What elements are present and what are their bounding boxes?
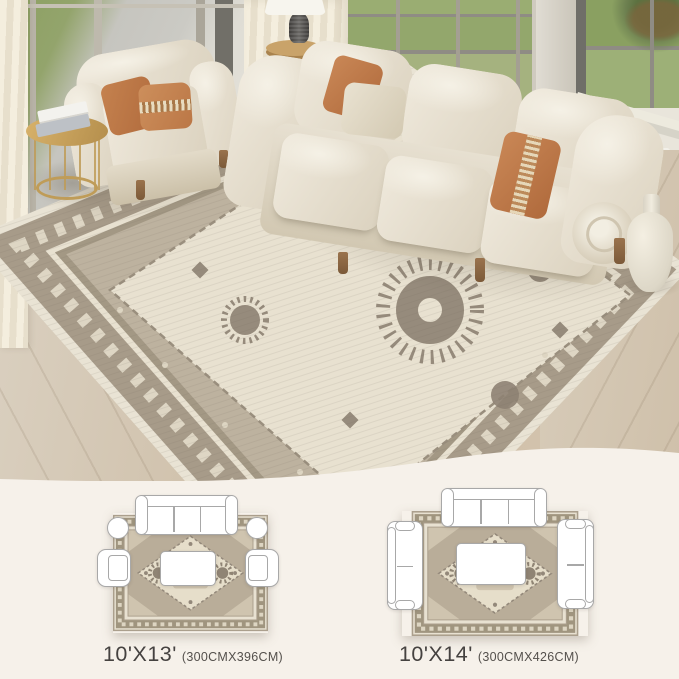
diagram-loveseat [387,521,423,610]
diagram-loveseat-arm [565,599,586,609]
product-image: 10'X13'(300CMX396CM) 10'X14'(300CMX426CM… [0,0,679,679]
diagram-sofa-seam [508,500,510,524]
diagram-loveseat-arm [395,521,415,531]
size-label: 10'X14'(300CMX426CM) [378,642,600,667]
diagram-loveseat-seam [567,564,584,566]
wave-divider [0,436,679,482]
size-option-10x13: 10'X13'(300CMX396CM) [88,482,298,674]
size-text: 10'X13' [103,642,177,666]
diagram-side-table [246,517,268,539]
lamp-shade [264,0,326,15]
diagram-side-table [107,517,129,539]
metric-text: (300CMX396CM) [182,650,283,664]
metric-text: (300CMX426CM) [478,650,579,664]
diagram-sofa [441,488,547,527]
diagram-sofa-seam [480,500,482,524]
diagram-sofa-seam [200,507,202,532]
diagram-armchair-seat [108,555,128,581]
diagram-coffee-table [160,551,216,586]
diagram-armchair-seat [248,555,268,581]
diagram-sofa-arm [534,488,547,527]
size-option-10x14: 10'X14'(300CMX426CM) [378,482,600,674]
diagram-sofa-back [453,490,535,500]
sofa-seat-cushion [271,131,391,233]
size-label: 10'X13'(300CMX396CM) [88,642,298,667]
sofa-leg [614,238,625,264]
diagram-armchair [245,549,279,587]
side-table-ring [36,176,98,200]
diagram-loveseat-back [387,527,396,604]
diagram-loveseat [557,519,594,609]
diagram-loveseat-arm [395,600,415,610]
diagram-loveseat-seam [397,566,413,568]
sofa-leg [338,252,348,274]
diagram-sofa [135,495,238,535]
chair-leg [136,180,145,200]
diagram-sofa-arm [225,495,238,535]
floor-vase [627,212,673,292]
size-text: 10'X14' [399,642,473,666]
diagram-sofa-seam [173,507,175,532]
sofa-leg [475,258,485,282]
diagram-loveseat-arm [565,519,586,529]
diagram-loveseat-back [585,525,594,603]
diagram-armchair [97,549,131,587]
diagram-sofa-back [147,497,226,507]
diagram-coffee-table [456,543,526,585]
sofa-seat-cushion [375,153,495,255]
cream-pillow [340,82,407,140]
patterned-pillow [138,82,193,132]
